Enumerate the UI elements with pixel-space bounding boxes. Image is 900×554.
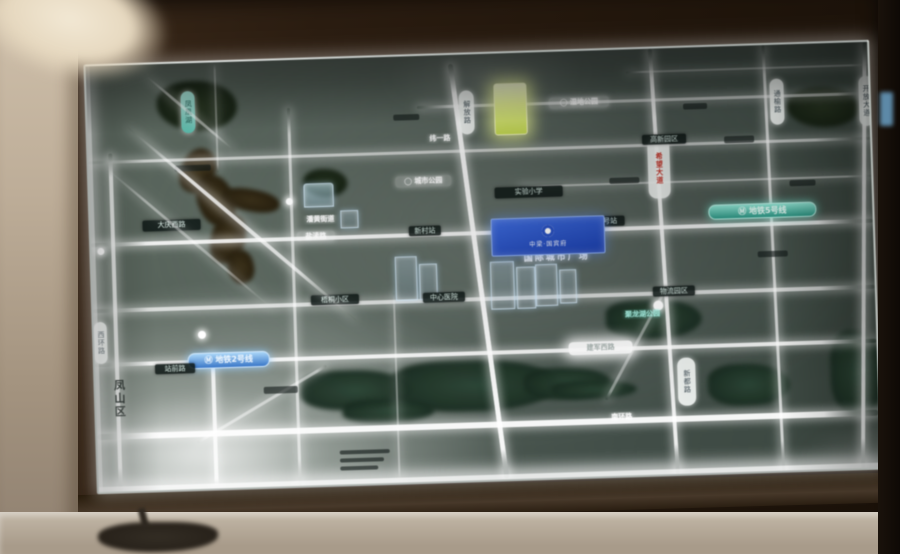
river-south-4 [551,379,638,400]
building-block-5 [535,264,558,307]
road-pill-west: 西环路 [94,322,108,364]
legend-line [340,449,390,455]
station-dot-2 [97,248,104,255]
minor-label [758,250,788,257]
road-pill-xindu: 新都路 [677,357,696,406]
station-dot-1 [198,331,206,339]
cutoff-label-sliver [880,92,893,126]
landmark-pale-building [303,183,334,208]
minor-label [724,135,754,143]
developer-plaque-text: 中梁·国宾府 [529,238,567,248]
road-pill-red: 希望大道 [647,138,671,199]
building-block-4 [516,266,536,309]
road-label-weiyi: 纬一路 [422,133,458,144]
metro-line5-badge: Ⓜ 地铁5号线 [708,202,816,220]
dark-right-edge [878,0,900,554]
poi-street-office: 潘黄街道 [298,214,342,224]
building-block-6 [559,269,577,304]
canal-west-1 [116,262,173,298]
building-block-3 [490,261,515,310]
poi-hightech: 高新园区 [642,134,686,145]
poi-school: 实验小学 [495,185,563,198]
road-pill-tongyu: 通榆路 [769,78,784,124]
river-south-5 [342,398,435,425]
minor-label [609,177,639,184]
poi-city-park: ◯ 城市公园 [395,175,451,188]
road-label-south: 南环路 [599,411,645,423]
poi-logistics: 物流园区 [653,285,695,296]
poi-block-2: 中心医院 [423,292,465,303]
minor-label [683,103,707,110]
minor-label [789,180,815,187]
road-label-yandu: 盐渎路 [297,231,335,242]
road-h-east-minor [519,175,871,188]
developer-ring-logo [542,224,554,236]
developer-plaque: 中梁·国宾府 [490,215,605,257]
illuminated-map-board: 中梁·国宾府 凤凰湖凤山区Ⓜ 地铁5号线Ⓜ 地铁2号线国际城市广场希望大道解放路… [83,40,882,494]
road-label-zhanqian: 站前路 [155,363,195,374]
legend-line [340,465,378,470]
glare-bottom-left [83,389,329,494]
building-small [340,210,359,229]
station-label-1: 新村站 [409,225,441,236]
road-v-east-center [648,49,680,474]
legend-line [340,457,384,462]
metro-line2-badge: Ⓜ 地铁2号线 [188,351,270,370]
road-h-main [91,219,873,248]
building-block-1 [395,256,418,301]
wall-left-edge [0,0,78,554]
poi-lake-park: 聚龙湖公园 [613,308,671,320]
road-label-jianjun: 建军西路 [568,340,632,355]
photo-of-illuminated-map-display: 中梁·国宾府 凤凰湖凤山区Ⓜ 地铁5号线Ⓜ 地铁2号线国际城市广场希望大道解放路… [0,0,900,554]
road-h-top-edge [626,64,868,74]
